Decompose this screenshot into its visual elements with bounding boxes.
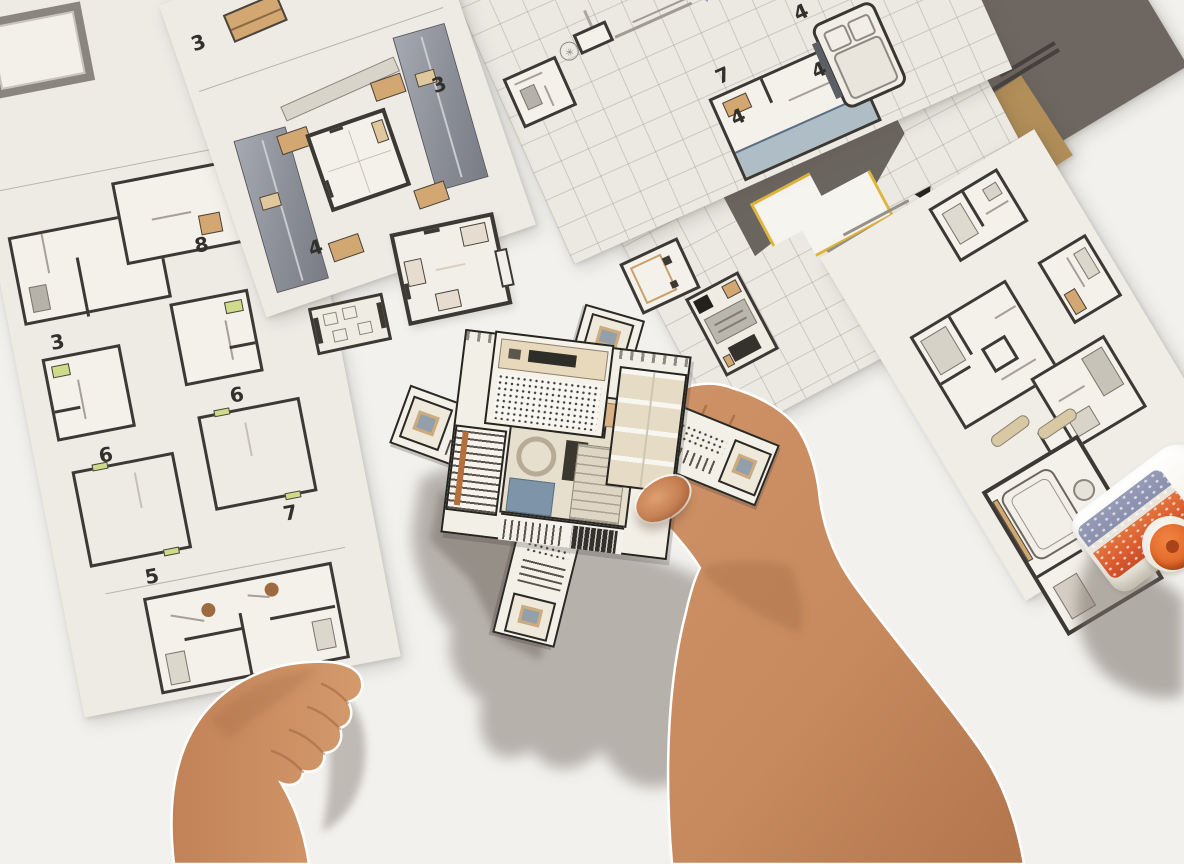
panel-seam (639, 372, 655, 487)
assembly-photo-scene: ✳ 7 4 4 4 (0, 0, 1184, 864)
blue-rug (505, 477, 555, 516)
round-rug (514, 434, 559, 479)
raised-block (484, 331, 615, 439)
wing-window-stripes (517, 558, 565, 592)
terrace-dark-slab (528, 350, 577, 368)
model-core (440, 329, 691, 560)
east-roof-panels (605, 366, 687, 493)
terrace-vent (508, 348, 521, 359)
glue-cap-tip (1166, 540, 1179, 553)
raised-facade-windows (493, 373, 602, 431)
